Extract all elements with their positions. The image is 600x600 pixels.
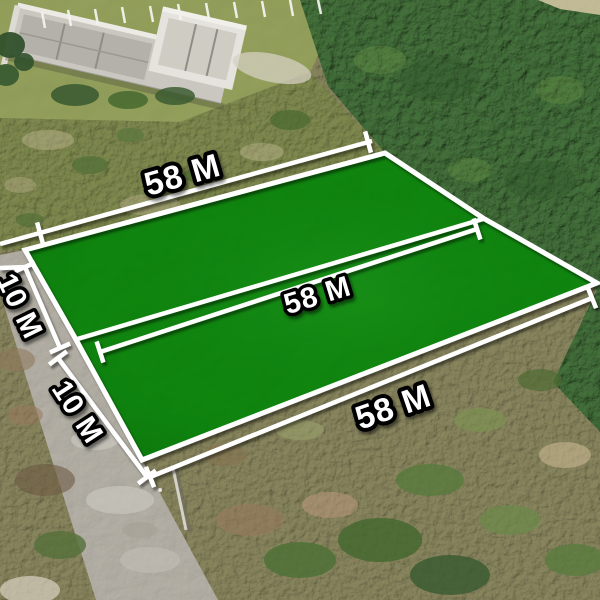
aerial-photo: 58 M 58 M 58 M 10 M 10 M [0,0,600,600]
aerial-photo-stage: 58 M 58 M 58 M 10 M 10 M [0,0,600,600]
